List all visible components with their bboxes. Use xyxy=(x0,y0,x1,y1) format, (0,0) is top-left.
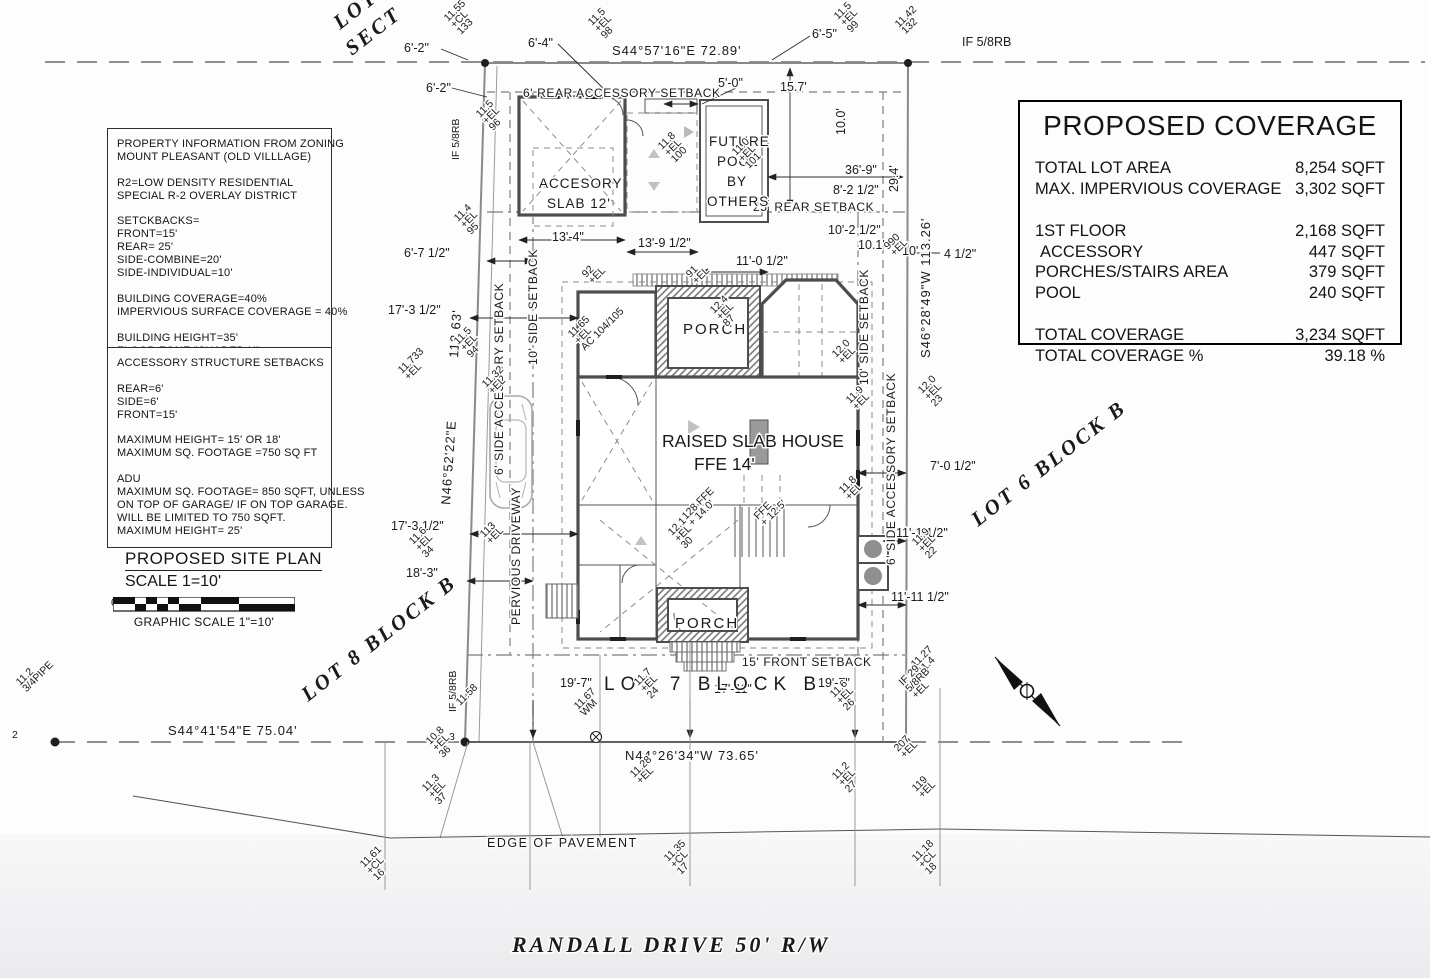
setback-label: 25' REAR SETBACK xyxy=(753,200,874,214)
point-number: 2 xyxy=(12,729,18,741)
coverage-label: POOL xyxy=(1035,283,1081,304)
dimension-label: 18'-3" xyxy=(406,566,438,580)
dimension-label: 13'-4" xyxy=(552,230,584,244)
text-line: ADU xyxy=(117,473,322,486)
scale-bar xyxy=(113,597,295,612)
text-line: PROPERTY INFORMATION FROM ZONING xyxy=(117,138,322,151)
lot6-label: LOT 6 BLOCK B xyxy=(966,395,1131,532)
coverage-row: TOTAL COVERAGE3,234 SQFT xyxy=(1035,325,1385,346)
text-line: SIDE-COMBINE=20' xyxy=(117,254,322,267)
dimension-label: 17'-3 1/2" xyxy=(388,303,441,317)
dimension-label: 10.0' xyxy=(834,108,848,135)
accessory-slab-label: SLAB 12' xyxy=(547,196,611,211)
text-line xyxy=(117,164,322,177)
coverage-row: POOL240 SQFT xyxy=(1035,283,1385,304)
dimension-label: 4 1/2" xyxy=(944,247,976,261)
left-stoop xyxy=(546,584,578,618)
coverage-value: 8,254 SQFT xyxy=(1295,158,1385,179)
bearing-southwest: S44°41'54"E 75.04' xyxy=(168,723,298,738)
text-line xyxy=(117,422,322,435)
dimension-label: 13'-9 1/2" xyxy=(638,236,691,250)
coverage-value: 3,234 SQFT xyxy=(1295,325,1385,346)
coverage-row: MAX. IMPERVIOUS COVERAGE3,302 SQFT xyxy=(1035,179,1385,200)
accessory-slab-label: ACCESORY xyxy=(539,176,623,191)
text-line xyxy=(117,280,322,293)
graphic-scale: 0 10' 20' 30' GRAPHIC SCALE 1"=10' xyxy=(113,597,295,629)
coverage-value: 240 SQFT xyxy=(1309,283,1385,304)
text-line: BUILDING HEIGHT=35' xyxy=(117,332,322,345)
dimension-label: 29.4' xyxy=(887,165,901,192)
dimension-label: 11'-0 1/2" xyxy=(736,254,788,268)
dimension-label: 8'-2 1/2" xyxy=(833,183,879,197)
coverage-label: MAX. IMPERVIOUS COVERAGE xyxy=(1035,179,1281,200)
dimension-label: 10.1' xyxy=(858,238,885,252)
proposed-coverage-panel: PROPOSED COVERAGE TOTAL LOT AREA8,254 SQ… xyxy=(1018,100,1402,345)
setback-label: 10' SIDE SETBACK xyxy=(526,249,540,365)
text-line: MAXIMUM SQ. FOOTAGE= 850 SQFT, UNLESS xyxy=(117,486,322,499)
text-line xyxy=(117,460,322,473)
iron-found-marker: IF 5/8RB xyxy=(447,671,459,712)
iron-found-marker: IF 5/8RB xyxy=(450,119,462,160)
coverage-value: 3,302 SQFT xyxy=(1295,179,1385,200)
coverage-row: 1ST FLOOR2,168 SQFT xyxy=(1035,221,1385,242)
text-line: BUILDING COVERAGE=40% xyxy=(117,293,322,306)
text-line: FRONT=15' xyxy=(117,228,322,241)
text-line: ON TOP OF GARAGE/ IF ON TOP GARAGE. xyxy=(117,499,322,512)
text-line xyxy=(117,203,322,216)
dimension-label: 11'-11 1/2" xyxy=(891,590,949,604)
setback-label: 10' SIDE SETBACK xyxy=(857,269,871,385)
accessory-setbacks-text: ACCESSORY STRUCTURE SETBACKS REAR=6'SIDE… xyxy=(117,357,322,538)
front-porch-label: PORCH xyxy=(675,615,739,632)
coverage-value: 2,168 SQFT xyxy=(1295,221,1385,242)
dimension-label: 5'-0" xyxy=(718,76,743,90)
dimension-label: 6'-4" xyxy=(528,36,553,50)
site-plan-title: PROPOSED SITE PLAN xyxy=(125,549,322,571)
text-line: SIDE=6' xyxy=(117,396,322,409)
driveway-label: PERVIOUS DRIVEWAY xyxy=(509,487,523,625)
coverage-row: TOTAL COVERAGE %39.18 % xyxy=(1035,346,1385,367)
text-line: MAXIMUM HEIGHT= 25' xyxy=(117,525,322,538)
coverage-title: PROPOSED COVERAGE xyxy=(1035,110,1385,142)
coverage-value: 379 SQFT xyxy=(1309,262,1385,283)
text-line: SIDE-INDIVIDUAL=10' xyxy=(117,267,322,280)
coverage-label: ACCESSORY xyxy=(1040,242,1143,263)
dimension-label: 15.7' xyxy=(780,80,807,94)
street-name: RANDALL DRIVE 50' R/W xyxy=(511,932,830,957)
coverage-row: PORCHES/STAIRS AREA379 SQFT xyxy=(1035,262,1385,283)
coverage-label: TOTAL LOT AREA xyxy=(1035,158,1171,179)
property-info-text: PROPERTY INFORMATION FROM ZONINGMOUNT PL… xyxy=(117,138,322,357)
text-line: FRONT=15' xyxy=(117,409,322,422)
text-line xyxy=(117,319,322,332)
site-plan-heading: PROPOSED SITE PLAN SCALE 1=10' xyxy=(125,549,322,591)
rear-porch-label: PORCH xyxy=(683,321,747,338)
dimension-label: 6'-2" xyxy=(404,41,429,55)
text-line: R2=LOW DENSITY RESIDENTIAL xyxy=(117,177,322,190)
text-line: REAR=6' xyxy=(117,383,322,396)
text-line: ACCESSORY STRUCTURE SETBACKS xyxy=(117,357,322,370)
edge-of-pavement-label: EDGE OF PAVEMENT xyxy=(487,836,638,850)
text-line: WILL BE LIMITED TO 750 SQFT. xyxy=(117,512,322,525)
coverage-label: PORCHES/STAIRS AREA xyxy=(1035,262,1228,283)
dimension-label: 6'-5" xyxy=(812,27,837,41)
house-ffe-label: FFE 14' xyxy=(694,454,755,474)
dimension-label: 7'-0 1/2" xyxy=(930,459,976,473)
dimension-label: 6'-2" xyxy=(426,81,451,95)
dimension-label: 6'-7 1/2" xyxy=(404,246,450,260)
north-arrow xyxy=(995,657,1060,726)
text-line: REAR= 25' xyxy=(117,241,322,254)
pool-label: OTHERS xyxy=(707,194,769,209)
accessory-setbacks-box: ACCESSORY STRUCTURE SETBACKS REAR=6'SIDE… xyxy=(107,347,332,548)
iron-found-marker: IF 5/8RB xyxy=(962,35,1011,49)
coverage-row: TOTAL LOT AREA8,254 SQFT xyxy=(1035,158,1385,179)
coverage-rows: TOTAL LOT AREA8,254 SQFTMAX. IMPERVIOUS … xyxy=(1035,158,1385,366)
coverage-row: ACCESSORY447 SQFT xyxy=(1035,242,1385,263)
dimension-label: 10'-2 1/2" xyxy=(828,223,881,237)
text-line: SETCKBACKS= xyxy=(117,215,322,228)
edge-of-pavement-line xyxy=(133,796,1430,838)
property-info-box: PROPERTY INFORMATION FROM ZONINGMOUNT PL… xyxy=(107,128,332,367)
coverage-value: 447 SQFT xyxy=(1309,242,1385,263)
text-line: MAXIMUM SQ. FOOTAGE =750 SQ FT xyxy=(117,447,322,460)
text-line xyxy=(117,370,322,383)
pool-label: BY xyxy=(727,174,747,189)
bearing-east: S46°28'49"W 113.26' xyxy=(918,217,933,358)
graphic-scale-caption: GRAPHIC SCALE 1"=10' xyxy=(113,615,295,629)
coverage-value: 39.18 % xyxy=(1324,346,1385,367)
coverage-label: TOTAL COVERAGE xyxy=(1035,325,1184,346)
text-line: MOUNT PLEASANT (OLD VILLLAGE) xyxy=(117,151,322,164)
bearing-west: N46°52'22"E xyxy=(438,420,459,506)
water-meter-symbol xyxy=(591,732,602,743)
text-line: MAXIMUM HEIGHT= 15' OR 18' xyxy=(117,434,322,447)
setback-label: 6' REAR ACCESSORY SETBACK xyxy=(523,86,721,100)
bearing-north: S44°57'16"E 72.89' xyxy=(612,43,742,58)
house-label: RAISED SLAB HOUSE xyxy=(662,431,844,451)
coverage-label: 1ST FLOOR xyxy=(1035,221,1126,242)
text-line: SPECIAL R-2 OVERLAY DISTRICT xyxy=(117,190,322,203)
text-line: IMPERVIOUS SURFACE COVERAGE = 40% xyxy=(117,306,322,319)
dimension-label: 36'-9" xyxy=(845,163,877,177)
site-plan-scale: SCALE 1=10' xyxy=(125,573,322,591)
coverage-label: TOTAL COVERAGE % xyxy=(1035,346,1203,367)
setback-label: 15' FRONT SETBACK xyxy=(742,655,872,669)
